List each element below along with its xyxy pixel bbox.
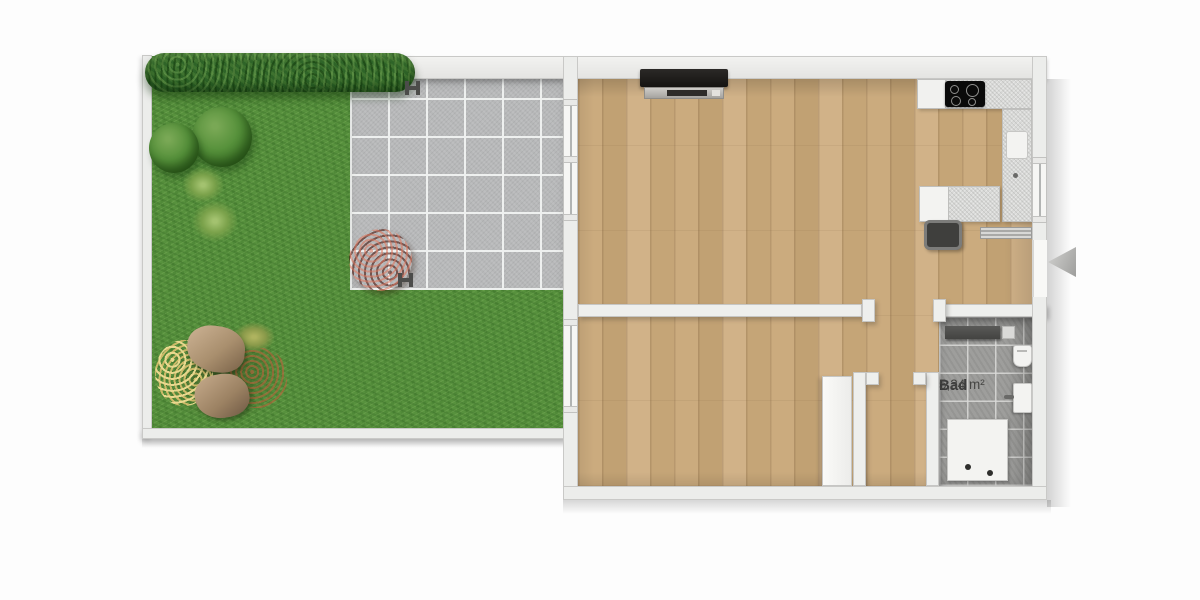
wall-closet-right [926, 372, 939, 486]
bathroom-towel [1002, 326, 1015, 339]
garden-bush-small [149, 123, 199, 173]
dining-counter [919, 186, 1000, 222]
bedroom-door-leaf [822, 376, 852, 486]
media-unit [644, 87, 724, 99]
garden-marker-icon [398, 273, 413, 287]
kitchen-cabinet [918, 80, 946, 108]
bathroom: Bad 5,34 m² [939, 317, 1032, 486]
wall-cap [862, 299, 875, 322]
tv-panel [640, 69, 728, 87]
kitchen-counter-right [1002, 109, 1032, 222]
bathroom-sink [1013, 383, 1032, 413]
patio-door [563, 99, 578, 221]
shower [947, 419, 1008, 481]
wall-living-bedroom [578, 304, 862, 317]
garden-marker-icon [405, 81, 420, 95]
bathroom-faucet [1004, 395, 1014, 399]
floor-plan-scene: Bad 5,34 m² [0, 0, 1200, 600]
grass-tuft [192, 200, 238, 242]
wall-stub [913, 372, 926, 385]
wall-bedroom-right [853, 372, 866, 486]
media-display [667, 90, 707, 96]
wall-bathroom-top [933, 304, 1047, 317]
garden-shadow-bottom [142, 439, 568, 448]
hedge [145, 53, 415, 92]
bathroom-shelf [945, 326, 1000, 339]
cooktop [945, 81, 985, 107]
building-shadow-bottom [563, 500, 1051, 514]
kitchen-window [1032, 157, 1047, 223]
toilet [1013, 345, 1032, 367]
kitchen-faucet [1013, 173, 1018, 178]
wall-bottom [563, 486, 1047, 500]
building-shadow-right [1047, 79, 1071, 507]
grass-tuft [182, 167, 224, 203]
dining-counter-cabinet [920, 187, 949, 221]
rock-flower-bed [155, 318, 297, 430]
media-button [712, 90, 720, 96]
entrance-door-opening [1032, 240, 1047, 297]
kitchen-sink [1006, 131, 1028, 159]
garden-bush-large [192, 107, 252, 167]
bedroom-window [563, 319, 578, 413]
wall-cap [933, 299, 946, 322]
radiator [980, 227, 1032, 239]
bathroom-area: 5,34 m² [939, 377, 985, 393]
chair [924, 220, 962, 250]
garden-curb-left [142, 55, 152, 438]
wall-stub [866, 372, 879, 385]
